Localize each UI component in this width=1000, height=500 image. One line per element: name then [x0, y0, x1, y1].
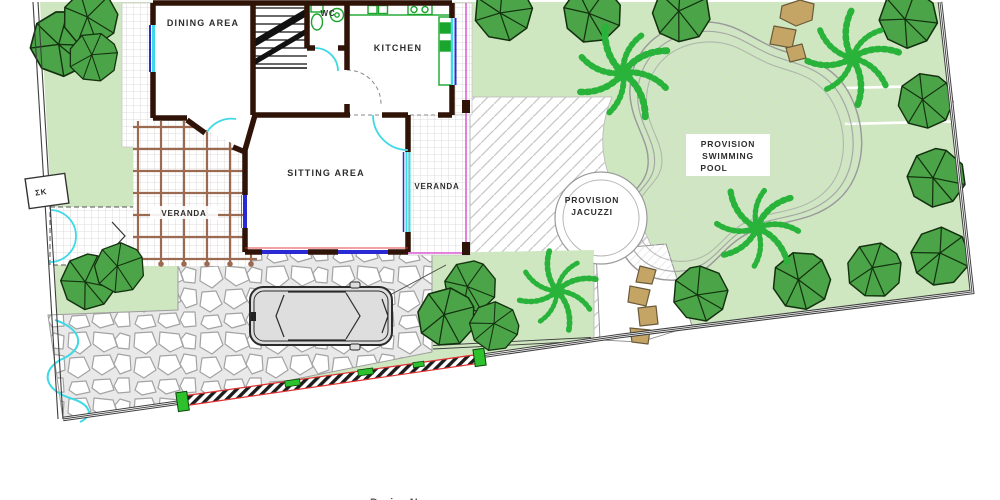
gate-post-right	[473, 348, 486, 366]
site-plan: PROVISION SWIMMING POOL PROVISION JACUZZ…	[0, 0, 1000, 500]
room-label-wc: WC	[321, 9, 336, 18]
pool-label-line2: SWIMMING	[702, 151, 754, 161]
room-label-kitchen: KITCHEN	[374, 43, 422, 53]
pool-label-line3: POOL	[700, 163, 727, 173]
gate-post-left	[176, 391, 190, 411]
pool-label-line1: PROVISION	[701, 139, 755, 149]
jacuzzi: PROVISION JACUZZI	[555, 172, 647, 264]
room-label-veranda-right: VERANDA	[414, 182, 459, 191]
room-label-veranda-left: VERANDA	[161, 209, 206, 218]
room-label-dining: DINING AREA	[167, 18, 239, 28]
jacuzzi-label-line2: JACUZZI	[571, 207, 613, 217]
house: VERANDA VERANDA	[122, 3, 472, 267]
utility-box: ΣΚ	[25, 173, 69, 208]
utility-box-label: ΣΚ	[34, 187, 47, 198]
room-label-sitting: SITTING AREA	[287, 168, 365, 178]
jacuzzi-label-line1: PROVISION	[565, 195, 619, 205]
